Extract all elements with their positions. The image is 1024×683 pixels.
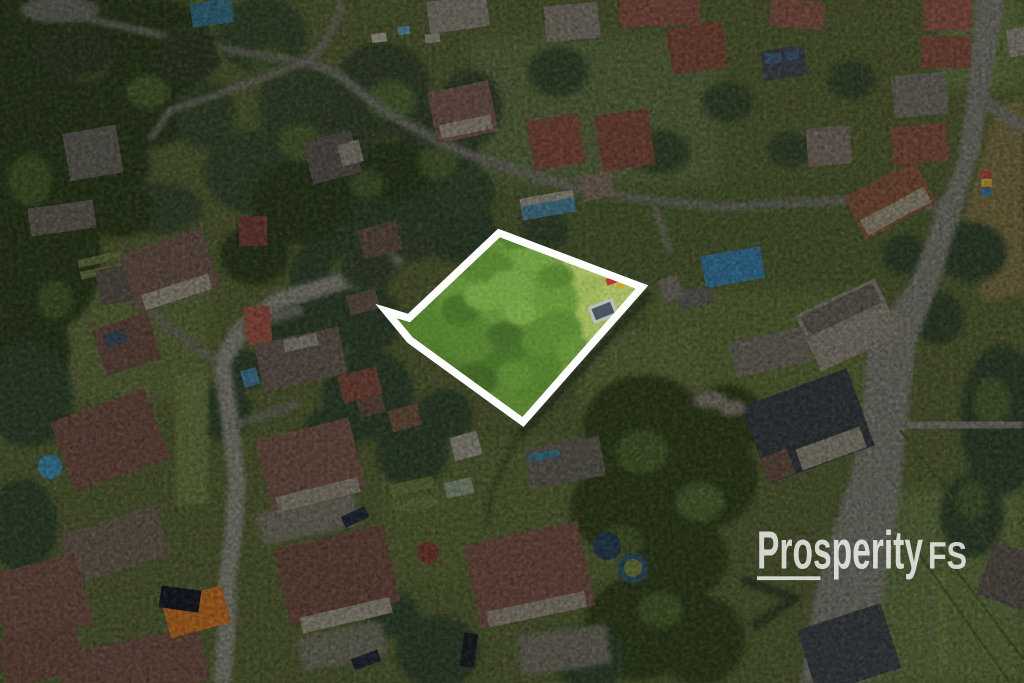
svg-text:FS: FS [928, 535, 967, 577]
svg-text:Prosperity: Prosperity [757, 520, 923, 580]
